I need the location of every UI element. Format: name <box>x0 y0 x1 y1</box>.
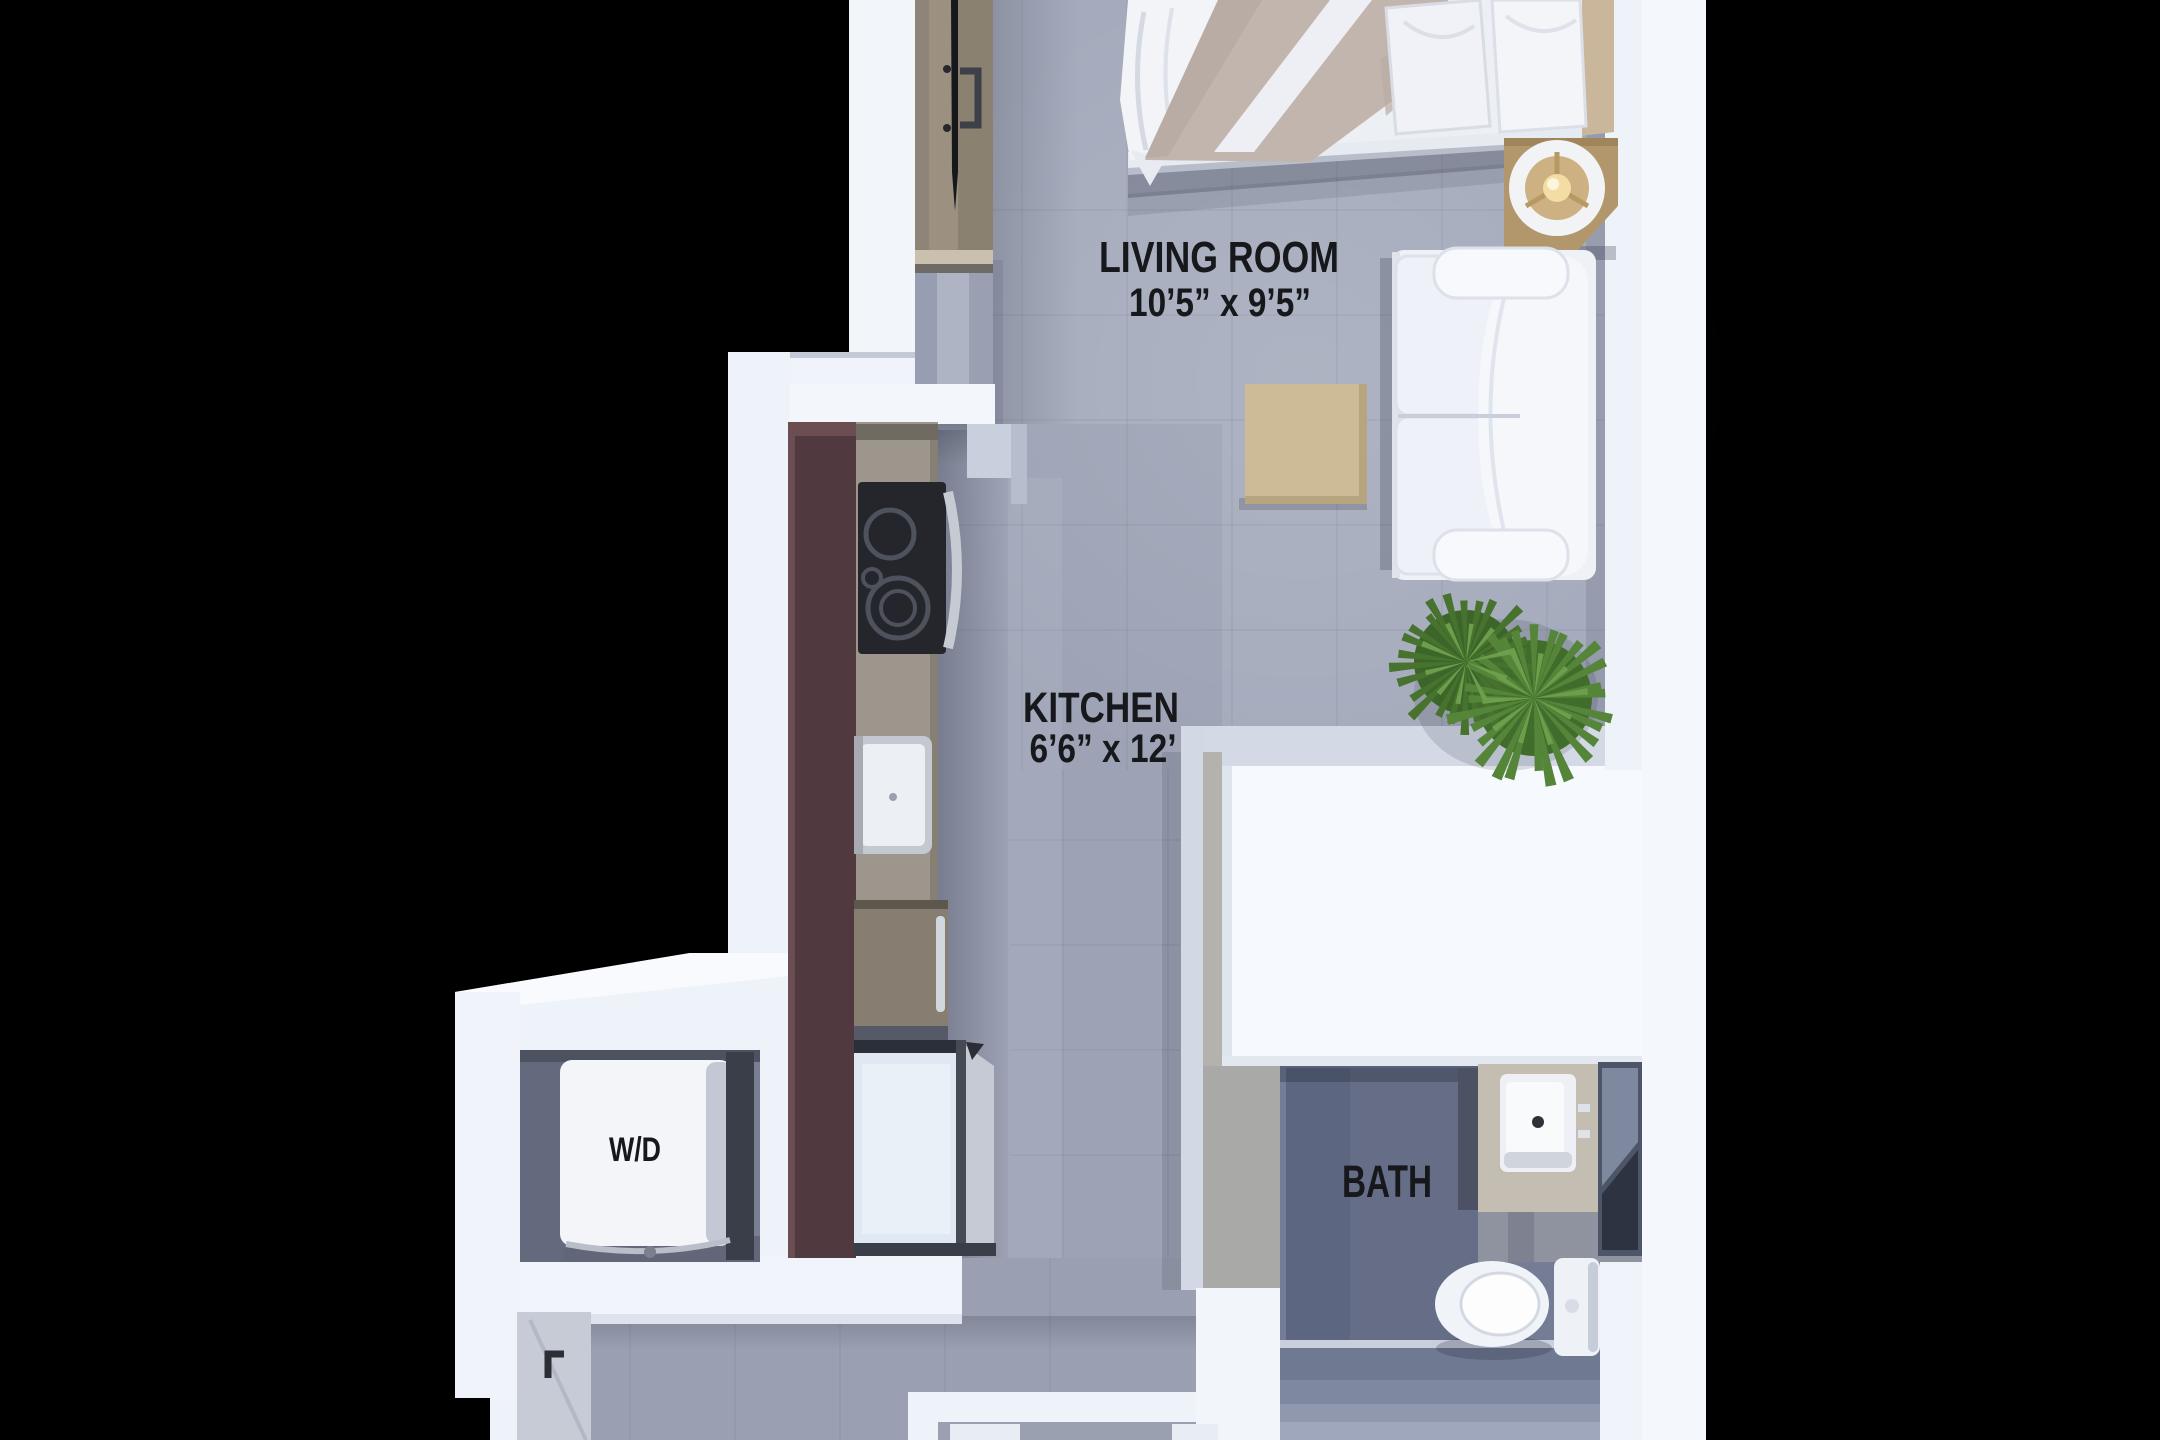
svg-text:W/D: W/D <box>609 1131 661 1169</box>
svg-text:10’5” x 9’5”: 10’5” x 9’5” <box>1129 281 1311 325</box>
svg-text:LIVING ROOM: LIVING ROOM <box>1099 233 1339 282</box>
svg-text:6’6” x 12’: 6’6” x 12’ <box>1030 727 1177 771</box>
svg-text:BATH: BATH <box>1342 1156 1432 1207</box>
svg-text:KITCHEN: KITCHEN <box>1023 684 1179 732</box>
